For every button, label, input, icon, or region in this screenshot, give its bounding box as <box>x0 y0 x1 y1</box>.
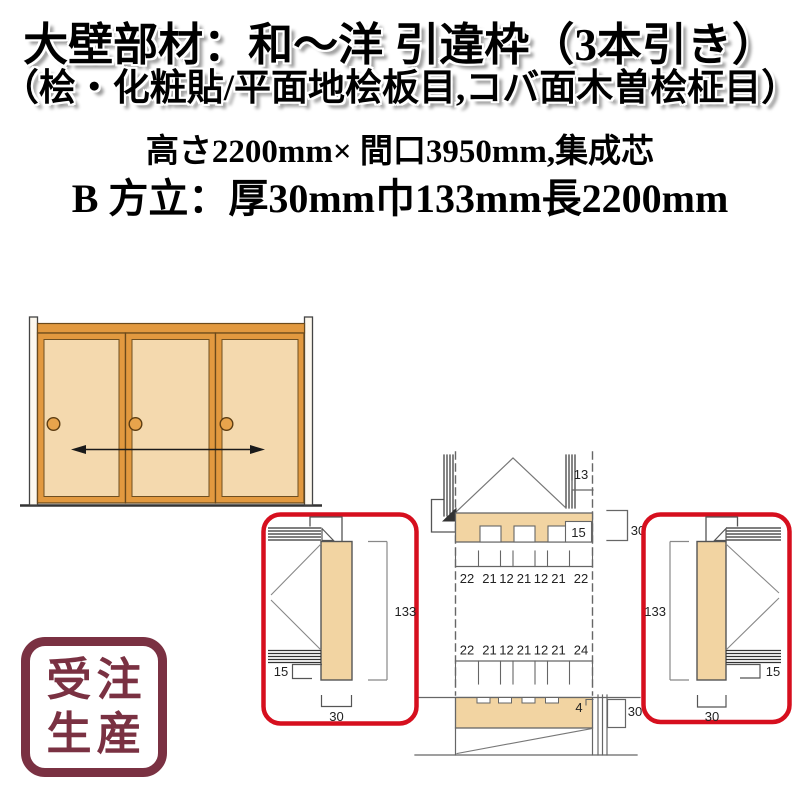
dim-label: 21 <box>517 571 531 586</box>
mullion-bar <box>321 542 352 681</box>
dim-label: 12 <box>499 643 513 658</box>
product-spec-image: 大壁部材：和～洋 引違枠（3本引き） （桧・化粧貼/平面地桧板目,コバ面木曽桧柾… <box>0 0 800 800</box>
dim-label: 24 <box>574 643 588 658</box>
dim-label: 15 <box>274 664 288 679</box>
dim-label: 12 <box>534 571 548 586</box>
sill-groove <box>477 698 490 704</box>
track-groove <box>480 526 501 542</box>
dim-label: 22 <box>460 571 474 586</box>
dim-label: 15 <box>571 525 585 540</box>
door-handle-icon <box>129 418 142 431</box>
frame-section-drawing: 15 13 30 22 21 12 21 12 <box>415 452 645 755</box>
door-panel-face <box>222 340 298 497</box>
dimension-row-top: 22 21 12 21 12 21 22 <box>456 548 593 586</box>
dim-label: 22 <box>574 571 588 586</box>
door-handle-icon <box>220 418 233 431</box>
dim-label: 21 <box>551 643 565 658</box>
stamp-text-line: 受注 <box>41 653 146 707</box>
sill-groove <box>499 698 512 704</box>
dim-label: 30 <box>705 709 719 724</box>
door-edge-lines <box>598 695 607 755</box>
left-mullion-detail: 15 133 30 <box>264 515 417 725</box>
thickness-bracket <box>607 511 628 541</box>
track-groove <box>548 526 566 542</box>
sill-groove <box>522 698 535 704</box>
dim-label: 30 <box>329 709 343 724</box>
right-post <box>305 317 313 505</box>
sill-groove <box>546 698 559 704</box>
right-mullion-detail: 15 133 30 <box>644 515 790 725</box>
left-post <box>30 317 38 505</box>
sill-diagonal <box>457 729 592 754</box>
dimension-row-bottom: 22 21 12 21 12 21 24 <box>456 643 593 688</box>
dim-label: 30 <box>628 704 642 719</box>
dim-label: 15 <box>766 664 780 679</box>
door-handle-icon <box>47 418 60 431</box>
track-groove <box>514 526 535 542</box>
made-to-order-stamp: 受注 生産 <box>21 637 167 777</box>
opening-diagonal-lines <box>456 458 566 512</box>
dim-label: 21 <box>482 643 496 658</box>
dim-label: 21 <box>482 571 496 586</box>
mullion-bar <box>697 542 726 681</box>
dim-label: 13 <box>574 467 588 482</box>
dim-label: 12 <box>534 643 548 658</box>
dim-label: 133 <box>395 604 417 619</box>
dim-label: 133 <box>644 604 666 619</box>
sliding-door-illustration <box>20 317 322 506</box>
dim-label: 22 <box>460 643 474 658</box>
dim-label: 4 <box>575 700 582 715</box>
dim-label: 21 <box>551 571 565 586</box>
top-rail <box>38 324 305 334</box>
wall-hatch-left <box>444 455 453 516</box>
stamp-text-line: 生産 <box>41 707 146 761</box>
sill-thickness-box <box>608 700 626 728</box>
dim-label: 12 <box>499 571 513 586</box>
door-panel-face <box>132 340 209 497</box>
dim-label: 21 <box>517 643 531 658</box>
